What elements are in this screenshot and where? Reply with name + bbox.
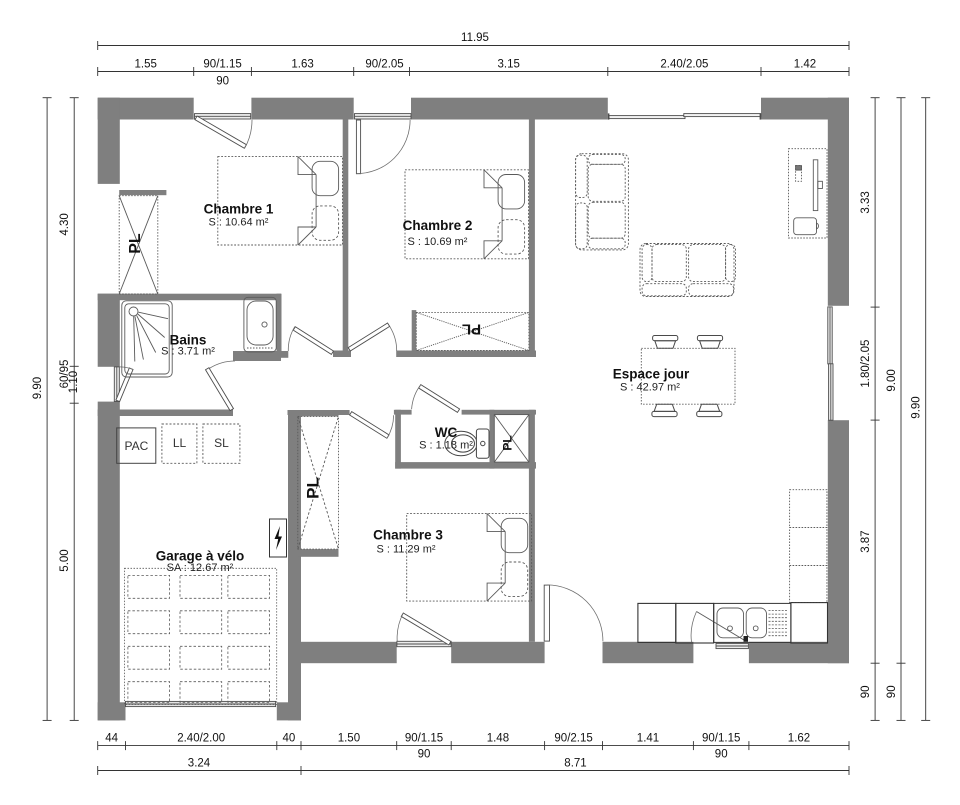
svg-text:9.90: 9.90 (32, 377, 44, 399)
svg-text:S : 1.18 m²: S : 1.18 m² (419, 440, 473, 452)
svg-text:40: 40 (283, 733, 296, 745)
svg-text:9.00: 9.00 (886, 369, 898, 391)
svg-text:Chambre 3: Chambre 3 (373, 528, 443, 543)
svg-text:90: 90 (715, 749, 728, 761)
svg-text:Chambre 2: Chambre 2 (403, 218, 473, 233)
svg-text:1.10: 1.10 (68, 371, 80, 393)
svg-text:PL: PL (127, 233, 144, 254)
svg-text:4.30: 4.30 (59, 213, 71, 235)
svg-text:90/1.15: 90/1.15 (702, 733, 740, 745)
svg-text:2.40/2.00: 2.40/2.00 (177, 733, 225, 745)
svg-text:Espace jour: Espace jour (613, 367, 690, 382)
svg-text:1.55: 1.55 (135, 59, 157, 71)
svg-text:3.33: 3.33 (860, 191, 872, 213)
svg-text:1.62: 1.62 (788, 733, 810, 745)
svg-text:90: 90 (886, 685, 898, 698)
svg-text:44: 44 (105, 733, 118, 745)
svg-text:PL: PL (462, 321, 481, 338)
svg-text:Chambre 1: Chambre 1 (204, 202, 274, 217)
svg-text:90/2.15: 90/2.15 (554, 733, 592, 745)
svg-text:S : 3.71 m²: S : 3.71 m² (161, 346, 215, 358)
svg-text:PL: PL (303, 477, 322, 499)
svg-text:2.40/2.05: 2.40/2.05 (660, 59, 708, 71)
svg-text:1.63: 1.63 (291, 59, 313, 71)
svg-text:S : 11.29 m²: S : 11.29 m² (376, 544, 435, 556)
svg-text:3.24: 3.24 (188, 758, 211, 770)
svg-text:LL: LL (173, 436, 187, 450)
svg-text:1.42: 1.42 (794, 59, 816, 71)
svg-text:3.15: 3.15 (498, 59, 520, 71)
svg-text:PL: PL (501, 435, 515, 450)
svg-text:1.80/2.05: 1.80/2.05 (860, 340, 872, 388)
svg-text:1.41: 1.41 (637, 733, 659, 745)
svg-text:8.71: 8.71 (564, 758, 586, 770)
svg-text:1.48: 1.48 (487, 733, 509, 745)
svg-text:1.50: 1.50 (338, 733, 360, 745)
svg-text:90: 90 (216, 76, 229, 88)
svg-text:5.00: 5.00 (59, 549, 71, 571)
svg-text:90: 90 (418, 749, 431, 761)
svg-text:WC: WC (435, 425, 458, 440)
svg-text:PAC: PAC (125, 439, 149, 453)
svg-text:90: 90 (860, 685, 872, 698)
svg-text:90/1.15: 90/1.15 (405, 733, 443, 745)
svg-text:90/2.05: 90/2.05 (365, 59, 403, 71)
svg-text:9.90: 9.90 (911, 396, 923, 418)
svg-text:S : 10.64 m²: S : 10.64 m² (209, 217, 269, 229)
svg-text:SL: SL (214, 436, 229, 450)
svg-text:S : 42.97 m²: S : 42.97 m² (620, 382, 680, 394)
svg-text:11.95: 11.95 (461, 32, 489, 44)
svg-text:S : 10.69 m²: S : 10.69 m² (408, 236, 468, 248)
svg-text:3.87: 3.87 (860, 530, 872, 552)
svg-text:90/1.15: 90/1.15 (203, 59, 241, 71)
svg-text:SA : 12.67 m²: SA : 12.67 m² (167, 562, 234, 574)
